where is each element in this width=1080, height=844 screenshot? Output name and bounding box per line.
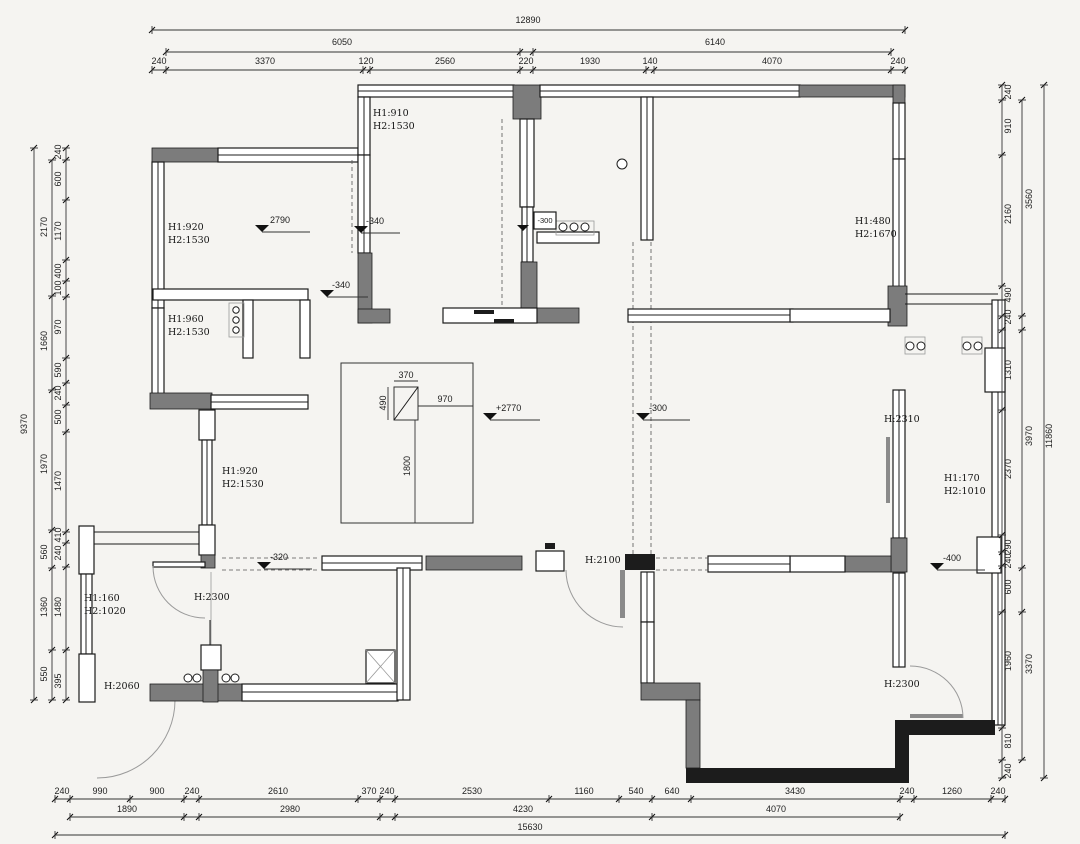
h1-value: H1:920 bbox=[168, 222, 204, 233]
height-label-right-low: H1:170 H2:1010 bbox=[944, 473, 986, 498]
height-label-mid-left-wall: H1:920 H2:1530 bbox=[222, 466, 264, 491]
dim-top-2560: 2560 bbox=[423, 56, 467, 66]
dim-left-c1480: 1480 bbox=[53, 585, 63, 629]
detail-dim-1800: 1800 bbox=[402, 444, 412, 488]
dim-top-240b: 240 bbox=[886, 56, 910, 66]
dim-bot-total: 15630 bbox=[508, 822, 552, 832]
h2-value: H2:1020 bbox=[84, 606, 126, 617]
dim-bot-240c: 240 bbox=[375, 786, 399, 796]
h1-value: H1:170 bbox=[944, 473, 980, 484]
h2-value: H2:1670 bbox=[855, 229, 897, 240]
dim-top-6050: 6050 bbox=[320, 37, 364, 47]
dim-left-c1170: 1170 bbox=[53, 209, 63, 253]
dim-bot-1890: 1890 bbox=[105, 804, 149, 814]
height-label-ul-room: H1:920 H2:1530 bbox=[168, 222, 210, 247]
dim-left-c1470: 1470 bbox=[53, 459, 63, 503]
dim-top-120: 120 bbox=[354, 56, 378, 66]
dim-right-c240b: 240 bbox=[1003, 295, 1013, 339]
level-plus2770: +2770 bbox=[496, 403, 521, 413]
dim-top-140: 140 bbox=[638, 56, 662, 66]
dim-bot-1260: 1260 bbox=[930, 786, 974, 796]
dim-top-1930: 1930 bbox=[568, 56, 612, 66]
dim-right-c240d: 240 bbox=[1003, 749, 1013, 793]
h2-value: H2:1530 bbox=[168, 235, 210, 246]
h1-value: H1:480 bbox=[855, 216, 891, 227]
h1-value: H1:920 bbox=[222, 466, 258, 477]
dim-left-c970: 970 bbox=[53, 305, 63, 349]
dim-bot-990: 990 bbox=[78, 786, 122, 796]
dim-left-c240c: 240 bbox=[53, 531, 63, 575]
dim-bot-2980: 2980 bbox=[268, 804, 312, 814]
dim-left-560: 560 bbox=[39, 530, 49, 574]
dim-bot-900: 900 bbox=[135, 786, 179, 796]
dim-right-3970: 3970 bbox=[1024, 414, 1034, 458]
dim-left-2170: 2170 bbox=[39, 205, 49, 249]
level-minus400: -400 bbox=[943, 553, 961, 563]
level-minus300-box: -300 bbox=[534, 216, 556, 225]
detail-dim-490: 490 bbox=[378, 381, 388, 425]
h1-value: H1:910 bbox=[373, 108, 409, 119]
detail-dim-970: 970 bbox=[425, 394, 465, 404]
dim-right-c600: 600 bbox=[1003, 565, 1013, 609]
dim-bot-3430: 3430 bbox=[773, 786, 817, 796]
height-label-top-mid: H1:910 H2:1530 bbox=[373, 108, 415, 133]
dim-right-total: 11860 bbox=[1044, 414, 1054, 458]
dim-left-c500: 500 bbox=[53, 395, 63, 439]
dim-bot-2530: 2530 bbox=[450, 786, 494, 796]
door-height-h2060: H:2060 bbox=[104, 681, 140, 694]
h2-value: H2:1010 bbox=[944, 486, 986, 497]
dim-right-3560: 3560 bbox=[1024, 177, 1034, 221]
dim-bot-540: 540 bbox=[624, 786, 648, 796]
level-minus300: -300 bbox=[649, 403, 667, 413]
dim-bot-4230: 4230 bbox=[501, 804, 545, 814]
dim-right-3370: 3370 bbox=[1024, 642, 1034, 686]
dim-left-c100: 100 bbox=[53, 266, 63, 310]
dim-top-240a: 240 bbox=[147, 56, 171, 66]
dim-left-c600: 600 bbox=[53, 157, 63, 201]
dim-left-c395: 395 bbox=[53, 659, 63, 703]
door-height-h2300-left: H:2300 bbox=[194, 592, 230, 605]
dim-bot-240d: 240 bbox=[895, 786, 919, 796]
dim-left-1360: 1360 bbox=[39, 585, 49, 629]
dim-bot-4070: 4070 bbox=[754, 804, 798, 814]
door-height-h2300-right: H:2300 bbox=[884, 679, 920, 692]
dim-right-c910: 910 bbox=[1003, 104, 1013, 148]
dim-bot-640: 640 bbox=[660, 786, 684, 796]
dim-top-220: 220 bbox=[514, 56, 538, 66]
dim-left-1660: 1660 bbox=[39, 319, 49, 363]
dim-left-550: 550 bbox=[39, 652, 49, 696]
height-label-left-mid: H1:960 H2:1530 bbox=[168, 314, 210, 339]
height-label-entry: H1:160 H2:1020 bbox=[84, 593, 126, 618]
dim-bot-240b: 240 bbox=[180, 786, 204, 796]
floor-plan-canvas: 12890 6050 6140 240 3370 120 2560 220 19… bbox=[0, 0, 1080, 844]
dim-bot-1160: 1160 bbox=[562, 786, 606, 796]
h2-value: H2:1530 bbox=[373, 121, 415, 132]
level-minus340a: -340 bbox=[366, 216, 384, 226]
dim-bot-240a: 240 bbox=[50, 786, 74, 796]
dim-right-c1960: 1960 bbox=[1003, 639, 1013, 683]
dim-top-6140: 6140 bbox=[693, 37, 737, 47]
level-minus320: -320 bbox=[270, 552, 288, 562]
dim-right-c2370: 2370 bbox=[1003, 447, 1013, 491]
h1-value: H1:960 bbox=[168, 314, 204, 325]
dim-bot-2610: 2610 bbox=[256, 786, 300, 796]
dim-right-c1310: 1310 bbox=[1003, 348, 1013, 392]
h1-value: H1:160 bbox=[84, 593, 120, 604]
door-height-h2310: H:2310 bbox=[884, 414, 920, 427]
door-height-h2100: H:2100 bbox=[585, 555, 621, 568]
detail-dim-370: 370 bbox=[394, 370, 418, 380]
dim-left-total: 9370 bbox=[19, 402, 29, 446]
dim-top-total: 12890 bbox=[506, 15, 550, 25]
dim-top-3370: 3370 bbox=[243, 56, 287, 66]
dim-left-1970: 1970 bbox=[39, 442, 49, 486]
h2-value: H2:1530 bbox=[222, 479, 264, 490]
level-2790: 2790 bbox=[270, 215, 290, 225]
dim-right-c2160: 2160 bbox=[1003, 192, 1013, 236]
h2-value: H2:1530 bbox=[168, 327, 210, 338]
dim-top-4070: 4070 bbox=[750, 56, 794, 66]
level-minus340b: -340 bbox=[332, 280, 350, 290]
height-label-top-right: H1:480 H2:1670 bbox=[855, 216, 897, 241]
